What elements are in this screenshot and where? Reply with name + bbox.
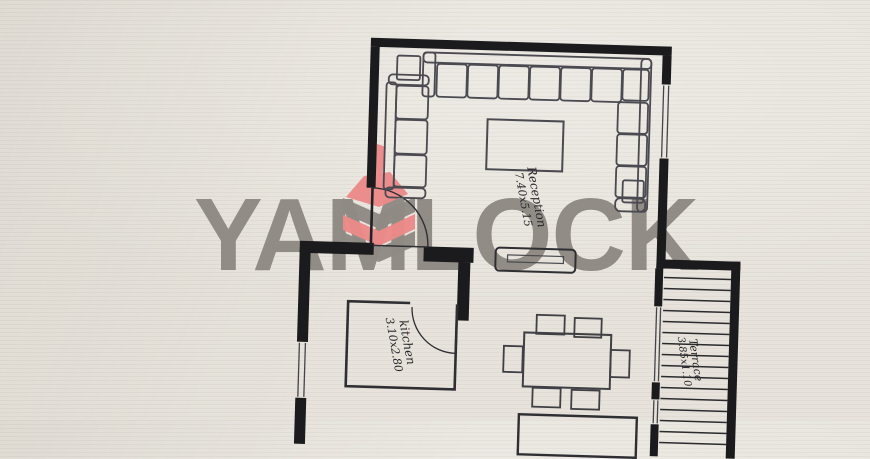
coffee-table-icon [486,119,563,171]
dining-table-icon [523,332,612,389]
wall-hall-top [300,241,374,255]
wall-outer-left-lower [294,398,306,444]
door-arc-icon [371,188,430,247]
dining-chair-icon [610,350,630,378]
wall-reception-left [367,47,380,188]
wall-reception-bottom-stub [423,246,473,262]
kitchen-door-arc-icon [411,307,457,353]
wall-outer-left-upper [297,250,311,342]
wall-reception-top [371,38,672,56]
wall-terrace-left-c [650,424,659,456]
floorplan-photo: { "watermark": { "brand": "YAMLOCK", "lo… [0,0,870,420]
dining-chair-icon [503,346,523,373]
terrace-window-upper-icon [654,307,660,381]
door-threshold [373,245,428,247]
dining-chair-icon [571,390,600,410]
tv-stand-icon [495,248,576,273]
sideboard-cut-icon [518,414,637,457]
wall-reception-right-top [662,55,672,84]
wall-terrace-left-a [654,268,663,306]
wall-hall-dining-separator [457,262,471,320]
dining-chair-icon [536,315,565,335]
dining-set [502,314,631,411]
side-table-icon [397,56,421,81]
wall-terrace-left-b [651,382,660,399]
kitchen-door-leaf [456,308,457,353]
kitchen-window-icon [298,343,306,397]
reception-window-icon [662,85,669,157]
floor-plan-drawing [288,36,750,459]
dining-chair-icon [532,388,561,408]
wall-terrace-top [656,259,740,270]
wall-reception-right-bottom [656,158,668,268]
entrance-door-swing [371,188,430,247]
door-leaf [371,188,373,245]
